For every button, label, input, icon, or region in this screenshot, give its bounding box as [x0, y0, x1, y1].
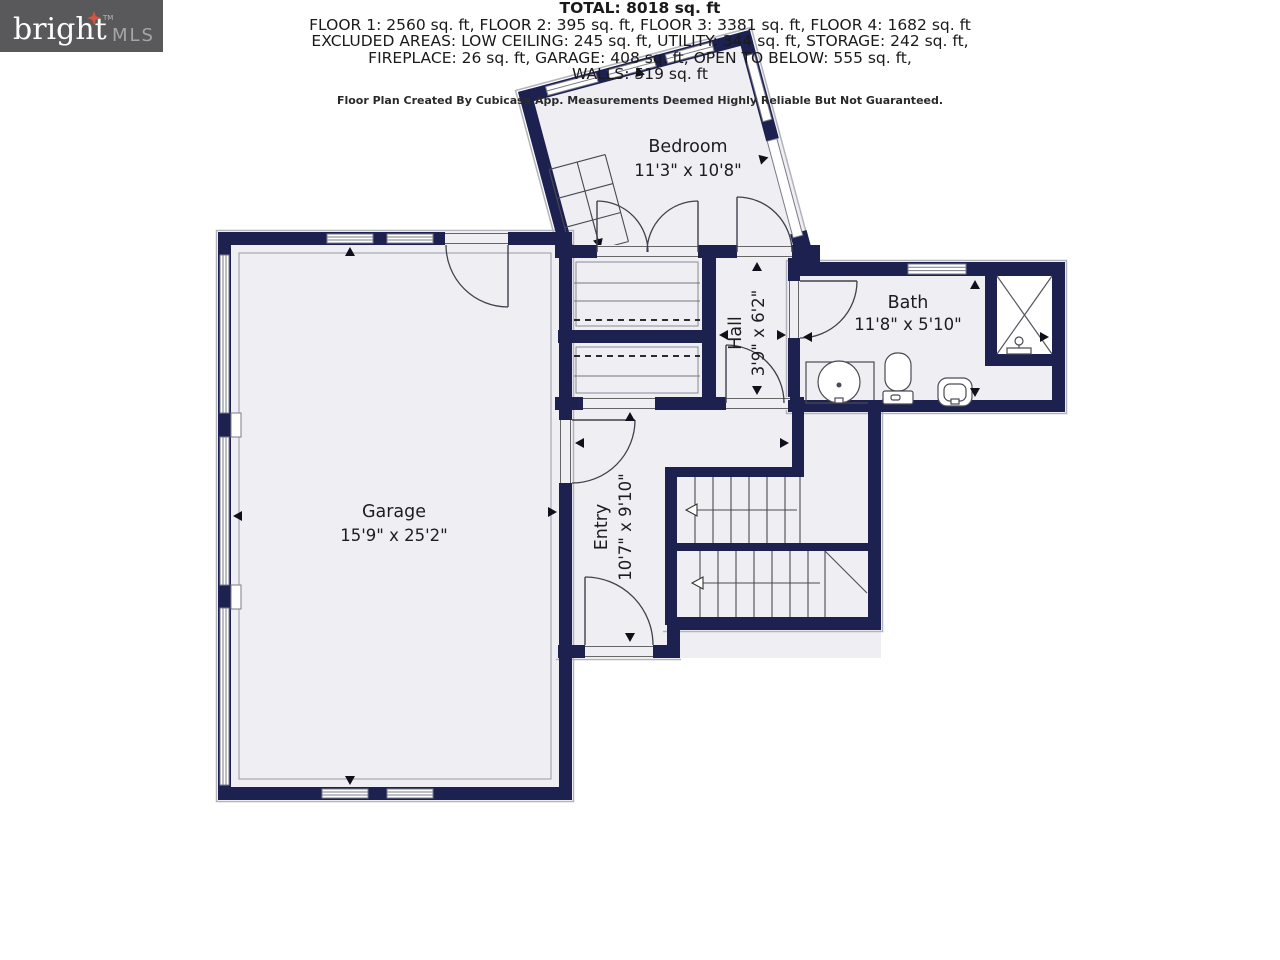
- shower: [997, 276, 1052, 354]
- closet-opening: [583, 397, 655, 410]
- brightmls-logo: bright TM MLS: [0, 0, 170, 59]
- entry-label: Entry: [592, 504, 612, 551]
- garage-label: Garage: [362, 502, 426, 522]
- bath-window: [908, 264, 966, 274]
- floorplan-page: Bedroom 11'3" x 10'8" Bath 11'8" x 5'10"…: [0, 0, 1280, 960]
- logo-trademark: TM: [103, 14, 113, 22]
- garage-dims: 15'9" x 25'2": [340, 526, 448, 545]
- floors-line: FLOOR 1: 2560 sq. ft, FLOOR 2: 395 sq. f…: [0, 17, 1280, 34]
- floorplan-drawing: Bedroom 11'3" x 10'8" Bath 11'8" x 5'10"…: [0, 0, 1280, 960]
- hall-dims: 3'9" x 6'2": [749, 290, 768, 377]
- secondary-sink: [938, 378, 972, 406]
- bedroom-label: Bedroom: [648, 137, 727, 157]
- hall-label: Hall: [726, 316, 746, 350]
- walls-line: WALLS: 519 sq. ft: [0, 66, 1280, 83]
- entry-dims: 10'7" x 9'10": [616, 473, 635, 581]
- excluded-line-2: FIREPLACE: 26 sq. ft, GARAGE: 408 sq. ft…: [0, 50, 1280, 67]
- disclaimer: Floor Plan Created By Cubicasa App. Meas…: [0, 93, 1280, 110]
- toilet-fixture: [883, 353, 913, 404]
- bath-label: Bath: [888, 293, 929, 313]
- bath-dims: 11'8" x 5'10": [854, 315, 962, 334]
- area-summary: TOTAL: 8018 sq. ft FLOOR 1: 2560 sq. ft,…: [0, 0, 1280, 109]
- excluded-line-1: EXCLUDED AREAS: LOW CEILING: 245 sq. ft,…: [0, 33, 1280, 50]
- garage-entry-opening: [559, 420, 572, 483]
- logo-suffix-text: MLS: [112, 25, 155, 46]
- logo-star-icon: [86, 10, 102, 26]
- bedroom-dims: 11'3" x 10'8": [634, 161, 742, 180]
- total-area: TOTAL: 8018 sq. ft: [0, 0, 1280, 17]
